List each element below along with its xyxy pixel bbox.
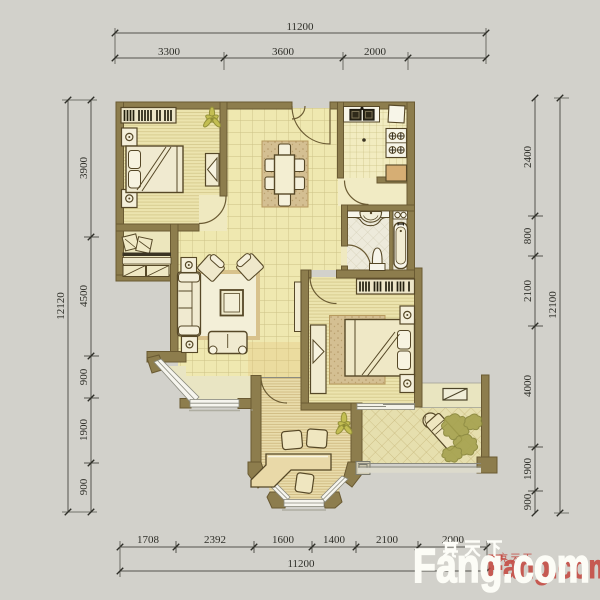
svg-text:4000: 4000 bbox=[522, 375, 534, 398]
svg-text:1400: 1400 bbox=[323, 534, 346, 546]
svg-text:2392: 2392 bbox=[204, 534, 226, 546]
svg-text:1900: 1900 bbox=[78, 419, 90, 442]
svg-text:900: 900 bbox=[522, 493, 534, 510]
svg-text:Fang.com: Fang.com bbox=[413, 540, 590, 593]
svg-text:900: 900 bbox=[78, 478, 90, 495]
svg-text:2100: 2100 bbox=[522, 280, 534, 303]
svg-text:800: 800 bbox=[522, 227, 534, 244]
svg-text:4500: 4500 bbox=[78, 285, 90, 308]
svg-text:1600: 1600 bbox=[272, 534, 295, 546]
svg-text:12100: 12100 bbox=[547, 291, 559, 319]
svg-text:11200: 11200 bbox=[287, 558, 315, 570]
svg-text:900: 900 bbox=[78, 368, 90, 385]
svg-text:3600: 3600 bbox=[272, 46, 295, 58]
svg-text:11200: 11200 bbox=[286, 21, 314, 33]
svg-text:2400: 2400 bbox=[522, 146, 534, 169]
svg-text:1708: 1708 bbox=[137, 534, 160, 546]
svg-text:1900: 1900 bbox=[522, 458, 534, 481]
svg-text:2100: 2100 bbox=[376, 534, 399, 546]
svg-text:3900: 3900 bbox=[78, 157, 90, 180]
svg-text:3300: 3300 bbox=[158, 46, 181, 58]
svg-text:12120: 12120 bbox=[55, 292, 67, 320]
svg-text:2000: 2000 bbox=[364, 46, 387, 58]
